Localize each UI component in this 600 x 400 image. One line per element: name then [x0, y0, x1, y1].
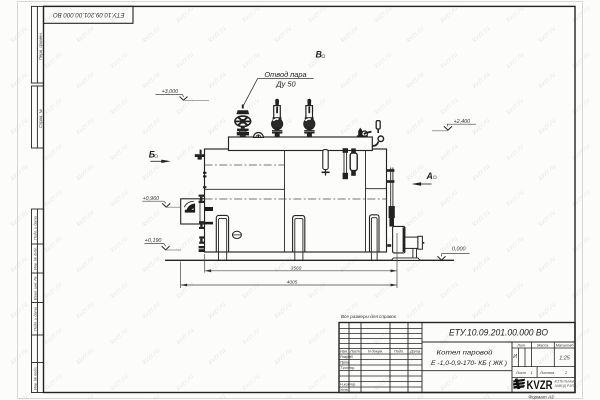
svg-text:Масштаб: Масштаб — [556, 343, 575, 347]
svg-text:Т.контр.: Т.контр. — [340, 366, 355, 370]
svg-text:1:25: 1:25 — [559, 355, 570, 361]
svg-text:ЕТУ.10.09.201.00.000 ВО: ЕТУ.10.09.201.00.000 ВО — [449, 327, 548, 337]
svg-text:И: И — [513, 354, 517, 360]
svg-text:Формат А3: Формат А3 — [528, 395, 554, 400]
svg-text:Листов: Листов — [539, 370, 554, 375]
svg-text:Н.контр.: Н.контр. — [340, 383, 356, 387]
svg-text:Лист: Лист — [349, 350, 360, 354]
svg-text:Разраб.: Разраб. — [340, 355, 354, 359]
svg-text:Отвод пара: Отвод пара — [264, 70, 306, 79]
svg-text:3560: 3560 — [291, 265, 302, 271]
svg-text:В: В — [316, 50, 323, 60]
svg-text:KVZR: KVZR — [527, 378, 553, 392]
svg-text:4005: 4005 — [287, 280, 298, 286]
svg-text:Изм.: Изм. — [340, 350, 348, 354]
svg-text:1: 1 — [531, 370, 533, 375]
svg-text:ЗАВОД РЭП: ЗАВОД РЭП — [555, 384, 575, 388]
svg-text:Пров.: Пров. — [340, 361, 350, 365]
svg-text:0,000: 0,000 — [452, 247, 466, 253]
svg-text:Лист: Лист — [515, 370, 527, 375]
svg-text:N докум.: N докум. — [368, 350, 383, 354]
svg-text:КОТЕЛЬНЫЙ: КОТЕЛЬНЫЙ — [555, 379, 577, 383]
svg-text:Подп.: Подп. — [394, 350, 404, 354]
svg-text:Подп. и дата: Подп. и дата — [33, 216, 37, 240]
svg-text:Ду 50: Ду 50 — [275, 79, 296, 88]
svg-text:Инв. № подл.: Инв. № подл. — [33, 366, 37, 390]
svg-text:Утв.: Утв. — [340, 388, 349, 392]
svg-text:Лит.: Лит. — [516, 343, 526, 347]
svg-text:ЕТУ.10.09.201.00.000 ВО: ЕТУ.10.09.201.00.000 ВО — [53, 11, 125, 18]
svg-text:Котел паровой: Котел паровой — [437, 348, 493, 356]
svg-text:Дата: Дата — [409, 350, 420, 354]
svg-text:Б: Б — [149, 150, 155, 160]
svg-text:Инв. № дубл.: Инв. № дубл. — [33, 247, 37, 270]
svg-text:Взам. инв. №: Взам. инв. № — [33, 277, 37, 300]
svg-text:Справ. №: Справ. № — [38, 109, 43, 128]
svg-text:Перв. примен.: Перв. примен. — [38, 32, 43, 60]
svg-text:А: А — [426, 171, 433, 181]
svg-text:Е -1,0-0,9-170- КБ ( ЖК ): Е -1,0-0,9-170- КБ ( ЖК ) — [431, 360, 507, 367]
svg-text:Подп. и дата: Подп. и дата — [33, 307, 37, 331]
svg-text:Масса: Масса — [537, 343, 548, 347]
svg-text:Все размеры для справок: Все размеры для справок — [341, 314, 397, 319]
